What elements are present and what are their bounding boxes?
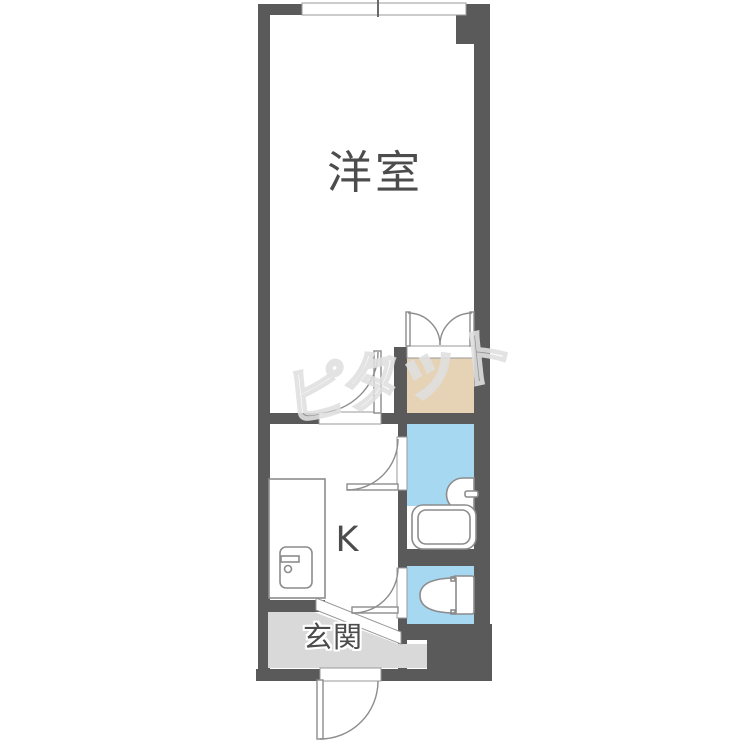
toilet-door-arc: [352, 568, 398, 613]
closet-door-arc-right: [440, 313, 472, 345]
washbasin-faucet-icon: [465, 491, 478, 497]
bathroom-door-opening: [397, 437, 407, 490]
front-door-opening: [320, 668, 381, 681]
closet-door-arc-left: [408, 313, 440, 345]
toilet-bowl: [420, 578, 456, 613]
kitchen-label: K: [320, 523, 374, 558]
entrance-label: 玄関: [293, 623, 373, 652]
window: [302, 3, 466, 15]
front-door-leaf: [317, 680, 323, 739]
bathroom-door-arc: [347, 439, 398, 490]
room-door-opening: [319, 412, 381, 424]
closet-door-leaf-right: [470, 312, 474, 346]
closet-door-leaf-left: [406, 312, 410, 346]
plan-overlay: [0, 0, 750, 750]
closet-opening: [407, 346, 474, 358]
western-room-label: 洋室: [295, 150, 455, 195]
front-door-arc: [320, 681, 378, 739]
floor-plan: 洋室 K 玄関 ピタット: [0, 0, 750, 750]
room-door-arc: [319, 352, 378, 413]
